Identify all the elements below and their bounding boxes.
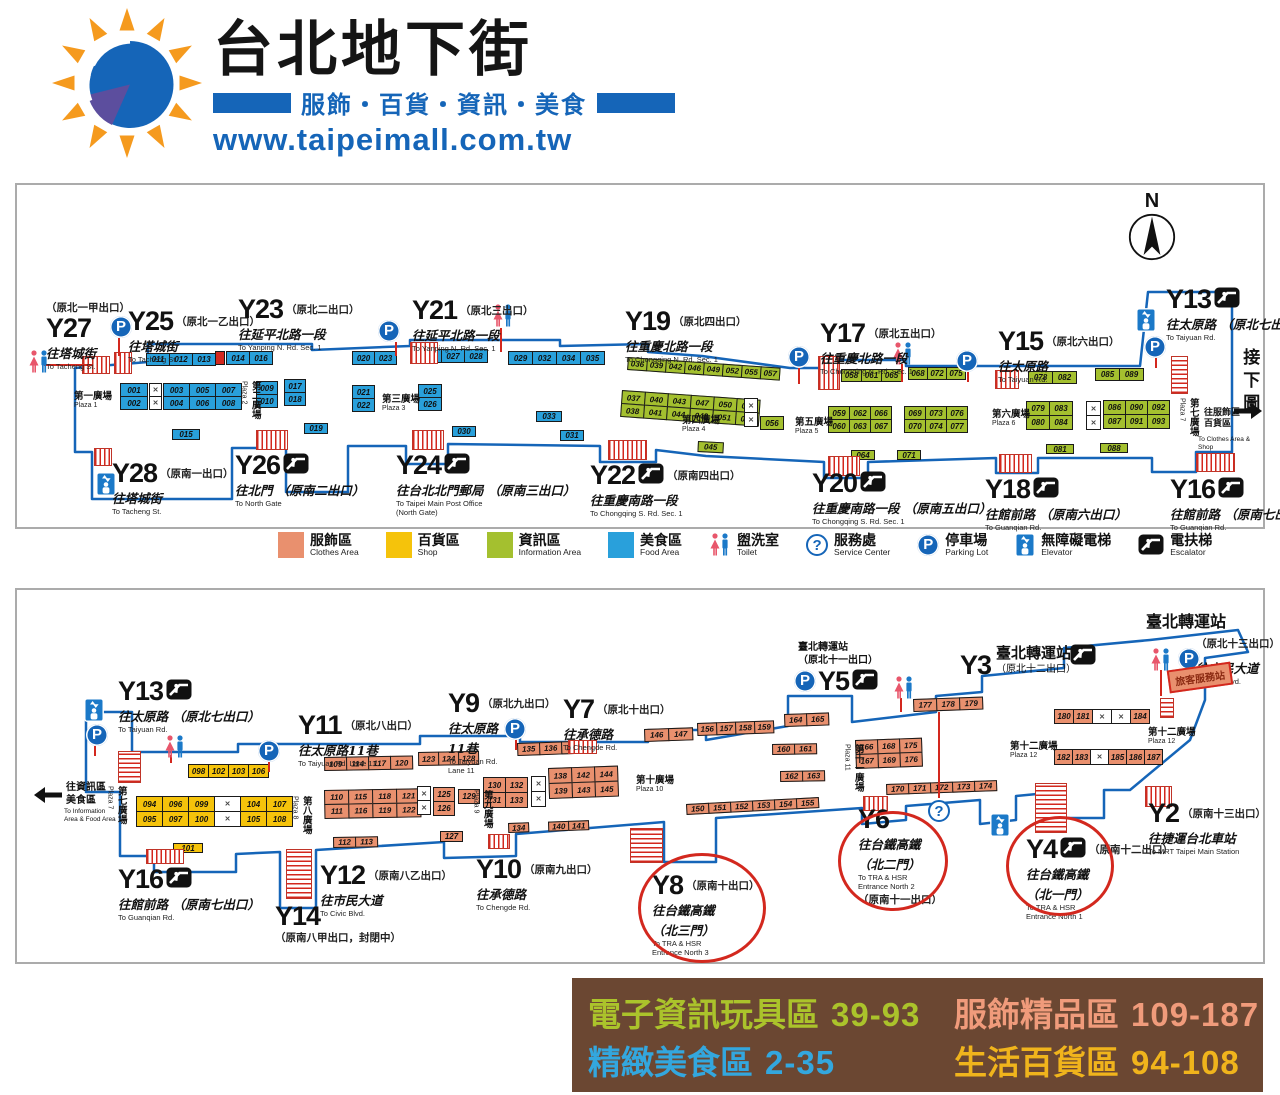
exit-street-en: To Taiyuan Rd. (118, 725, 260, 734)
parking-icon: P (788, 346, 810, 368)
exit-id-label: Y12 (320, 862, 365, 889)
legend-en: Service Center (834, 548, 890, 557)
unit-block: 033 (536, 411, 561, 421)
plaza-en: Plaza 2 (240, 381, 248, 419)
exit-Y28: Y28（原南一出口）往塔城街To Tacheng St. (112, 460, 234, 516)
exit-street-en: To Guanqian Rd. (1170, 523, 1280, 532)
map-note: 往服飾區百貨區 (1204, 408, 1240, 431)
exit-Y19: Y19（原北四出口）往重慶北路一段To Chongqing N. Rd. Sec… (625, 308, 747, 364)
plaza-zh: 第八廣場 (299, 796, 313, 834)
elevator-shaft: ✕ (149, 396, 162, 410)
red-connector-line (395, 342, 397, 356)
unit-063: 063 (849, 419, 871, 433)
unit-159: 159 (754, 720, 774, 734)
unit-070: 070 (904, 419, 926, 433)
unit-block: 019 (304, 423, 327, 433)
exit-street-zh: 往太原路 （原北七出口） (118, 706, 260, 725)
exit-id-label: Y21 (412, 297, 457, 324)
subtitle-text: 服飾・百貨・資訊・美食 (301, 85, 587, 120)
unit-block: 015 (172, 429, 199, 439)
unit-block: 079083080084 (1026, 401, 1072, 429)
exit-street-zh: 往延平北路一段 (412, 325, 534, 344)
elevator-shaft: ✕ (417, 800, 431, 815)
unit-169: 169 (877, 752, 901, 768)
plaza-en: Plaza 6 (992, 420, 1030, 428)
parking-icon: P (258, 740, 280, 762)
red-connector-line (798, 368, 800, 384)
red-connector-line (967, 372, 969, 382)
plaza-zh: 第七廣場 (1186, 398, 1200, 436)
exit-old-name: （原南八甲出口，封閉中） (275, 930, 401, 945)
escalator-icon (283, 453, 309, 474)
escalator-icon (852, 669, 878, 690)
exit-id-label: Y17 (820, 320, 865, 347)
unit-147: 147 (668, 727, 693, 741)
exit-id-label: Y25 (128, 308, 173, 335)
exit-Y2: Y2（原南十三出口）往捷運台北車站To MRT Taipei Main Stat… (1148, 800, 1266, 856)
unit-023: 023 (374, 351, 397, 365)
unit-139: 139 (549, 782, 574, 799)
map-note: 往資訊區美食區 (66, 782, 106, 807)
unit-002: 002 (120, 396, 148, 410)
unit-123: 123 (418, 752, 439, 766)
unit-103: 103 (228, 764, 249, 778)
unit-015: 015 (172, 429, 200, 440)
plaza-en: Plaza 10 (636, 786, 674, 794)
exit-old-name: （原北五出口） (868, 326, 942, 341)
elevator-icon (990, 813, 1010, 837)
legend-swatch (608, 532, 634, 558)
map-note: （原北十二出口） (996, 664, 1076, 677)
unit-162: 162 (780, 771, 803, 782)
exit-street-en: To Tacheng St. (112, 507, 234, 516)
legend-item: 服飾區Clothes Area (278, 532, 359, 558)
plaza-en: Plaza 11 (843, 744, 851, 792)
exit-Y23: Y23（原北二出口）往延平北路一段To Yanping N. Rd. Sec. … (238, 296, 360, 352)
unit-045: 045 (697, 441, 724, 453)
unit-184: 184 (1130, 709, 1150, 724)
exit-Y27: （原北一甲出口）Y27往塔城街To Tacheng St. (46, 300, 130, 371)
unit-134: 134 (508, 822, 529, 833)
unit-088: 088 (1100, 443, 1128, 453)
unit-160: 160 (772, 744, 795, 755)
exit-street-en2: (North Gate) (396, 508, 575, 517)
unit-block: 020023 (352, 351, 396, 364)
unit-163: 163 (802, 770, 825, 781)
legend: 服飾區Clothes Area百貨區Shop資訊區Information Are… (278, 532, 1212, 558)
plaza-zh: 第三廣場 (382, 391, 420, 405)
unit-003: 003 (163, 383, 190, 397)
arrow-left-icon (34, 786, 62, 804)
unit-block: 166168175167169176 (855, 738, 922, 768)
legend-item: 盥洗室Toilet (709, 533, 779, 558)
unit-090: 090 (1125, 400, 1148, 415)
exit-street-zh: 往太原路11巷 (298, 740, 418, 759)
unit-170: 170 (886, 783, 909, 795)
plaza-en: Plaza 8 (291, 796, 299, 834)
compass-icon: N (1128, 190, 1176, 266)
unit-086: 086 (1103, 400, 1126, 415)
stairs (118, 751, 141, 783)
subtitle-bar-left (213, 93, 291, 113)
unit-187: 187 (1144, 749, 1163, 765)
unit-022: 022 (352, 398, 375, 412)
plaza-zh: 第一廣場 (74, 388, 112, 402)
unit-032: 032 (532, 351, 557, 365)
unit-018: 018 (284, 392, 306, 406)
exit-Y13: Y13往太原路 （原北七出口）To Taiyuan Rd. (118, 678, 260, 734)
stairs (608, 440, 647, 460)
red-connector-line (1155, 358, 1157, 368)
unit-block: 030 (452, 426, 475, 436)
map-note: To InformationArea & Food Area (64, 808, 116, 824)
highlight-circle (1006, 816, 1114, 916)
legend-zh: 停車場 (945, 533, 988, 548)
unit-076: 076 (946, 406, 968, 420)
unit-block: 098102103106 (188, 764, 268, 777)
stairs (1171, 356, 1188, 394)
exit-old-name: （原北三出口） (460, 303, 534, 318)
exit-street-en: To Chengde Rd. (563, 743, 671, 752)
exit-id-label: Y22 (590, 462, 635, 489)
stairs (488, 834, 510, 849)
unit-107: 107 (266, 796, 293, 812)
parking-icon: P (917, 534, 939, 556)
unit-056: 056 (760, 416, 784, 430)
plaza-en: Plaza 12 (1148, 738, 1196, 746)
unit-025: 025 (418, 384, 442, 398)
exit-street-zh: 往延平北路一段 (238, 324, 360, 343)
legend-zh: 百貨區 (418, 533, 460, 548)
unit-069: 069 (904, 406, 926, 420)
elevator-shaft: ✕ (1111, 709, 1131, 724)
unit-049: 049 (703, 362, 724, 376)
unit-block: 017018 (284, 379, 305, 405)
exit-street-en: To Taipei Main Post Office (396, 499, 575, 508)
map-note: 臺北轉運站（原北十一出口） (798, 642, 878, 667)
exit-id-label: Y13 (118, 678, 163, 705)
plaza-zh: 第九廣場 (480, 790, 494, 828)
elevator-shaft: ✕ (1092, 709, 1112, 724)
unit-007: 007 (215, 383, 242, 397)
unit-block: 125126 (433, 787, 454, 815)
unit-block: ✕✕ (1086, 401, 1100, 429)
exit-street-en: To Taiyuan Rd. (998, 375, 1120, 384)
exit-id-label: Y23 (238, 296, 283, 323)
elevator-shaft: ✕ (1086, 401, 1101, 416)
zone-range-label: 精緻美食區2-35 (588, 1036, 954, 1084)
unit-176: 176 (899, 752, 923, 768)
unit-block: ✕✕ (744, 398, 757, 426)
unit-150: 150 (686, 803, 710, 815)
escalator-icon (1070, 644, 1096, 665)
exit-old-name: （原南一出口） (160, 466, 234, 481)
unit-block: 094096099✕104107095097100✕105108 (136, 796, 292, 826)
unit-006: 006 (189, 396, 216, 410)
legend-item: P停車場Parking Lot (917, 533, 988, 558)
unit-116: 116 (348, 803, 373, 818)
exit-street-zh2: 11巷 (448, 738, 556, 757)
unit-119: 119 (372, 803, 397, 818)
escalator-icon (444, 453, 470, 474)
exit-street-en: To Yanping N. Rd. Sec. 1 (238, 343, 360, 352)
footer-zones: 電子資訊玩具區39-93服飾精品區109-187精緻美食區2-35生活百貨區94… (572, 978, 1263, 1092)
unit-block: 156157158159 (697, 720, 773, 735)
exit-Y17: Y17（原北五出口）往重慶北路一段To Chongqing N. Rd. Sec… (820, 320, 942, 376)
exit-street-en: To Taiyuan Rd. (448, 757, 556, 766)
exit-street-zh: 往承德路 (563, 724, 671, 743)
plaza-zh: 第十二廣場 (1010, 738, 1058, 752)
exit-Y15: Y15（原北六出口）往太原路To Taiyuan Rd. (998, 328, 1120, 384)
escalator-icon (1033, 477, 1059, 498)
exit-street-en: To Chongqing N. Rd. Sec. 1 (820, 367, 942, 376)
unit-165: 165 (806, 712, 829, 726)
unit-089: 089 (1119, 368, 1144, 381)
unit-031: 031 (560, 430, 584, 441)
map-note: 臺北轉運站 (1146, 612, 1226, 632)
red-connector-line (268, 762, 270, 772)
unit-block: 088 (1100, 443, 1127, 452)
unit-106: 106 (248, 764, 269, 778)
elevator-shaft: ✕ (214, 811, 241, 827)
unit-073: 073 (925, 406, 947, 420)
subtitle-bar-right (597, 93, 675, 113)
map-note: To Clothes Area &Shop (1198, 436, 1250, 452)
unit-158: 158 (735, 721, 755, 735)
exit-Y3: Y3 (960, 652, 991, 679)
unit-097: 097 (162, 811, 189, 827)
unit-145: 145 (594, 781, 619, 798)
stairs (999, 454, 1032, 473)
unit-055: 055 (741, 365, 762, 379)
stairs (256, 430, 288, 450)
unit-001: 001 (120, 383, 148, 397)
unit-102: 102 (208, 764, 229, 778)
unit-126: 126 (433, 801, 455, 816)
unit-094: 094 (136, 796, 163, 812)
exit-old-name: （原北十出口） (597, 702, 671, 717)
unit-034: 034 (556, 351, 581, 365)
elevator-shaft: ✕ (531, 776, 546, 792)
exit-Y12: Y12（原南八乙出口）往市民大道To Civic Blvd. (320, 862, 452, 918)
legend-zh: 無障礙電梯 (1041, 533, 1111, 548)
exit-street-en: To Civic Blvd. (320, 909, 452, 918)
site-url: www.taipeimall.com.tw (213, 122, 675, 158)
unit-block: 177178179 (913, 697, 982, 711)
unit-041: 041 (643, 405, 668, 421)
unit-096: 096 (162, 796, 189, 812)
parking-icon: P (378, 320, 400, 342)
exit-street-en2: Lane 11 (448, 766, 556, 775)
unit-017: 017 (284, 379, 306, 393)
elevator-shaft: ✕ (531, 791, 546, 807)
unit-140: 140 (548, 821, 569, 832)
unit-block: 160161 (772, 743, 816, 754)
exit-street-en: To Tacheng St. (128, 355, 260, 364)
parking-icon: P (956, 350, 978, 372)
sun-logo-icon (52, 8, 202, 163)
exit-old-name: （原南十三出口） (1182, 806, 1266, 821)
plaza-en: Plaza 4 (682, 426, 720, 434)
exit-id-label: Y24 (396, 452, 441, 479)
plaza-label: 第十二廣場Plaza 12 (1148, 724, 1196, 746)
parking-icon: P (1144, 336, 1166, 358)
unit-127: 127 (440, 831, 463, 842)
exit-id-label: Y27 (46, 315, 91, 342)
unit-092: 092 (1147, 400, 1170, 415)
unit-077: 077 (946, 419, 968, 433)
unit-block: 001002 (120, 383, 147, 409)
unit-052: 052 (722, 364, 743, 378)
parking-icon: P (794, 670, 816, 692)
exit-street-zh: 往太原路 (448, 718, 556, 737)
unit-005: 005 (189, 383, 216, 397)
legend-zh: 盥洗室 (737, 533, 779, 548)
unit-111: 111 (324, 804, 349, 819)
legend-en: Information Area (519, 548, 581, 557)
highlight-circle (638, 853, 766, 963)
exit-id-label: Y13 (1166, 286, 1211, 313)
legend-item: 無障礙電梯Elevator (1015, 533, 1111, 558)
unit-066: 066 (870, 406, 892, 420)
exit-street-zh: 往塔城街 (112, 488, 234, 507)
zone-range-label: 電子資訊玩具區39-93 (588, 988, 954, 1036)
unit-block: 110115118121111116119122 (324, 788, 420, 818)
exit-street-zh: 往塔城街 (46, 343, 130, 362)
unit-019: 019 (304, 423, 328, 434)
unit-block: ✕✕ (531, 776, 545, 806)
unit-067: 067 (870, 419, 892, 433)
unit-block: 003005007004006008 (163, 383, 241, 409)
plaza-en: Plaza 3 (382, 405, 420, 413)
elevator-icon (84, 698, 104, 722)
exit-id-label: Y20 (812, 470, 857, 497)
plaza-label: 第六廣場Plaza 6 (992, 406, 1030, 428)
unit-021: 021 (352, 385, 375, 399)
unit-133: 133 (505, 792, 528, 808)
exit-id-label: Y3 (960, 652, 991, 679)
stairs (1160, 698, 1174, 718)
plaza-label: 第七廣場Plaza 7 (1178, 398, 1200, 436)
unit-block: 064071 (851, 450, 920, 459)
unit-181: 181 (1073, 709, 1093, 724)
unit-038: 038 (620, 403, 645, 419)
plaza-zh: 第十廣場 (636, 772, 674, 786)
legend-item: ?服務處Service Center (806, 533, 890, 558)
plaza-zh: 第五廣場 (795, 414, 833, 428)
exit-old-name: （原北十三出口） (1196, 636, 1280, 651)
exit-street-zh: 往承德路 (476, 884, 598, 903)
unit-074: 074 (925, 419, 947, 433)
unit-125: 125 (433, 787, 455, 802)
unit-block: 021022 (352, 385, 374, 411)
elevator-shaft: ✕ (417, 786, 431, 801)
exit-Y16: Y16往館前路 （原南七出口）To Guanqian Rd. (118, 866, 260, 922)
unit-block: 134140141 (508, 820, 588, 832)
unit-177: 177 (913, 698, 937, 712)
unit-071: 071 (897, 450, 921, 460)
exit-street-zh: 往館前路 （原南六出口） (985, 504, 1127, 523)
unit-173: 173 (952, 781, 975, 793)
map-note: 臺北轉運站 (996, 644, 1071, 663)
plaza-zh: 第十二廣場 (1148, 724, 1196, 738)
unit-block: 031 (560, 430, 583, 440)
unit-151: 151 (708, 802, 732, 814)
escalator-icon (1214, 287, 1240, 308)
exit-old-name: （原南八乙出口） (368, 868, 452, 883)
exit-id-label: Y10 (476, 856, 521, 883)
exit-street-zh: 往市民大道 (320, 890, 452, 909)
exit-Y11: Y11（原北八出口）往太原路11巷To Taiyuan Rd. Lane 11 (298, 712, 418, 768)
toilet-icon (893, 676, 915, 700)
exit-Y20: Y20往重慶南路一段 （原南五出口）To Chongqing S. Rd. Se… (812, 470, 991, 526)
exit-id-label: Y7 (563, 696, 594, 723)
unit-099: 099 (188, 796, 215, 812)
unit-057: 057 (760, 366, 781, 380)
unit-132: 132 (505, 777, 528, 793)
exit-id-label: Y14 (275, 903, 320, 930)
exit-street-en: To Yanping N. Rd. Sec. 1 (412, 344, 534, 353)
legend-swatch (278, 532, 304, 558)
stairs (146, 849, 184, 864)
unit-081: 081 (1046, 444, 1074, 454)
unit-087: 087 (1103, 414, 1126, 429)
exit-old-name: （原南四出口） (667, 468, 741, 483)
exit-street-zh: 往重慶北路一段 (820, 348, 942, 367)
unit-block: 086090092087091093 (1103, 400, 1169, 428)
exit-id-label: Y5 (818, 668, 849, 695)
exit-street-en: To Taiyuan Rd. (1166, 333, 1280, 342)
exit-old-name: （原北二出口） (286, 302, 360, 317)
unit-block: 182183✕185186187 (1054, 749, 1162, 764)
exit-Y22: Y22（原南四出口）往重慶南路一段To Chongqing S. Rd. Sec… (590, 462, 741, 518)
page-title: 台北地下街 (213, 18, 675, 81)
unit-block: ✕✕ (149, 383, 161, 409)
legend-en: Shop (418, 548, 460, 557)
exit-street-en: To Guanqian Rd. (985, 523, 1127, 532)
exit-id-label: Y19 (625, 308, 670, 335)
unit-block: 081 (1046, 444, 1073, 453)
plaza-zh: 第十一廣場 (851, 744, 865, 792)
legend-en: Escalator (1170, 548, 1212, 557)
stairs (412, 430, 444, 450)
unit-020: 020 (352, 351, 375, 365)
exit-street-zh: 往重慶南路一段 (590, 490, 741, 509)
compass-n-label: N (1128, 190, 1176, 213)
exit-street-zh: 往重慶北路一段 (625, 336, 747, 355)
elevator-shaft: ✕ (1086, 415, 1101, 430)
red-connector-line (938, 712, 940, 798)
elevator-shaft: ✕ (1090, 749, 1109, 765)
plaza-label: 第十一廣場Plaza 11 (843, 744, 865, 792)
highlight-circle (838, 811, 948, 911)
unit-035: 035 (580, 351, 605, 365)
exit-street-en: To Chongqing S. Rd. Sec. 1 (812, 517, 991, 526)
unit-030: 030 (452, 426, 476, 437)
exit-street-en: To Chongqing N. Rd. Sec. 1 (625, 355, 747, 364)
legend-zh: 服飾區 (310, 533, 359, 548)
exit-street-zh: 往太原路 (998, 356, 1120, 375)
unit-008: 008 (215, 396, 242, 410)
unit-block: 059062066060063067 (828, 406, 891, 432)
legend-item: 資訊區Information Area (487, 532, 581, 558)
exit-street-zh: 往重慶南路一段 （原南五出口） (812, 498, 991, 517)
taipei-mall-floor-map: 台北地下街 服飾・百貨・資訊・美食 www.taipeimall.com.tw … (0, 0, 1280, 1095)
plaza-en: Plaza 7 (1178, 398, 1186, 436)
legend-swatch (487, 532, 513, 558)
exit-id-label: Y2 (1148, 800, 1179, 827)
unit-152: 152 (730, 800, 754, 812)
